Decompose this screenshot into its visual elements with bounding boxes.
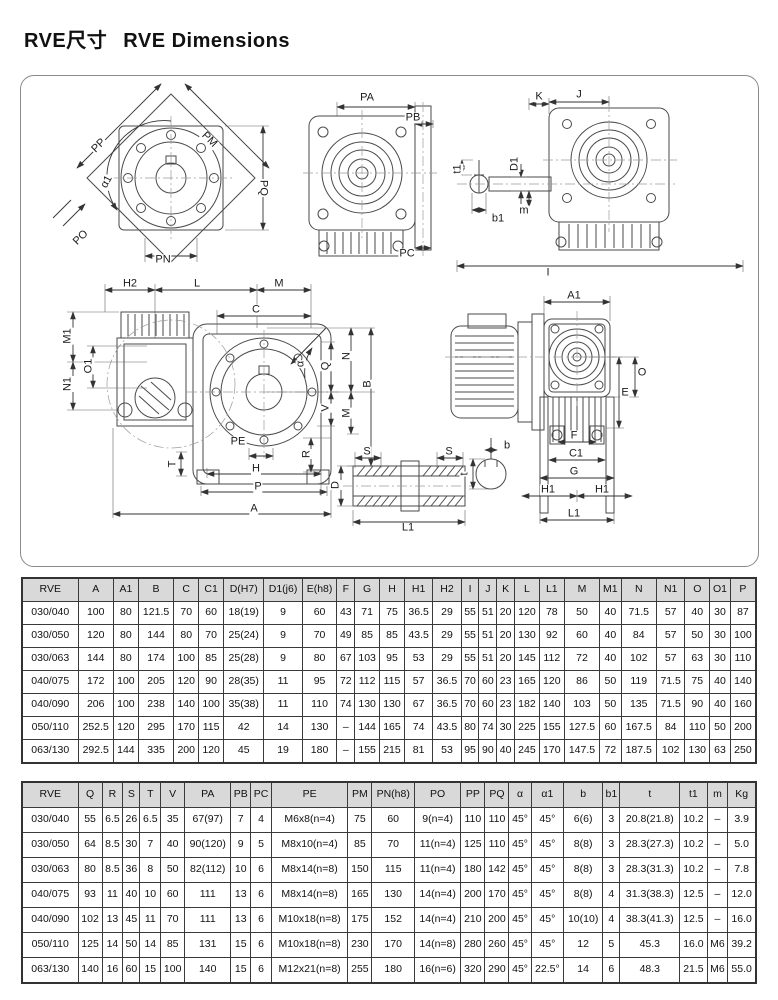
- table-cell: 115: [372, 858, 415, 883]
- table-cell: 8.5: [102, 833, 123, 858]
- column-header: PM: [348, 782, 372, 808]
- table-cell: 165: [515, 671, 540, 694]
- table-cell: 80: [461, 717, 479, 740]
- table-cell: –: [337, 740, 355, 764]
- table-cell: 205: [138, 671, 173, 694]
- table-cell: 200: [730, 717, 756, 740]
- table-cell: 51: [479, 625, 497, 648]
- table-row: 030/063144801741008525(28)98067103955329…: [22, 648, 756, 671]
- table-cell: 255: [348, 958, 372, 984]
- table-cell: 30: [123, 833, 140, 858]
- table-cell: 14(n=4): [414, 908, 460, 933]
- table-cell: 160: [730, 694, 756, 717]
- table-cell: 75: [380, 602, 405, 625]
- dim-label-l: L: [193, 279, 201, 290]
- table-cell: 45: [224, 740, 264, 764]
- table-cell: –: [707, 908, 728, 933]
- header-row: RVEQRSTVPAPBPCPEPMPN(h8)POPPPQαα1bb1tt1m…: [22, 782, 756, 808]
- table-cell: 45°: [509, 808, 531, 833]
- table-cell: 206: [78, 694, 113, 717]
- table-cell: 45°: [509, 908, 531, 933]
- table-cell: 5.0: [728, 833, 756, 858]
- table-cell: 64: [78, 833, 102, 858]
- dim-label-k: K: [534, 92, 543, 103]
- table-cell: 60: [600, 717, 621, 740]
- table-cell: 4: [251, 808, 272, 833]
- dim-label-t1: t1: [453, 163, 464, 174]
- table-cell: 9: [264, 648, 302, 671]
- table-cell: 6: [251, 933, 272, 958]
- dim-label-l1: L1: [567, 509, 581, 520]
- table-cell: –: [707, 833, 728, 858]
- table-cell: 14: [264, 717, 302, 740]
- table-cell: 180: [372, 958, 415, 984]
- dim-label-b1: b1: [491, 214, 505, 225]
- table-cell: 180: [461, 858, 485, 883]
- table-cell: 57: [656, 602, 684, 625]
- table-cell: 60: [123, 958, 140, 984]
- table-cell: 10: [140, 883, 161, 908]
- table-cell: 130: [355, 694, 380, 717]
- table-cell: 100: [113, 694, 138, 717]
- table-cell: 121.5: [138, 602, 173, 625]
- table-cell: 60: [479, 671, 497, 694]
- row-label: 030/063: [22, 858, 78, 883]
- table-cell: 10: [231, 858, 251, 883]
- table-cell: 75: [685, 671, 710, 694]
- table-cell: 142: [485, 858, 509, 883]
- table-cell: 174: [138, 648, 173, 671]
- table-cell: 28(35): [224, 671, 264, 694]
- table-cell: 15: [140, 958, 161, 984]
- table-cell: 85: [355, 625, 380, 648]
- dim-label-v: V: [321, 403, 332, 412]
- table-cell: 130: [685, 740, 710, 764]
- table-cell: M12x21(n=8): [271, 958, 347, 984]
- table-cell: 215: [380, 740, 405, 764]
- table-cell: 42: [224, 717, 264, 740]
- table-cell: 30: [497, 717, 515, 740]
- table-cell: 260: [485, 933, 509, 958]
- table-cell: 57: [656, 625, 684, 648]
- table-cell: 55: [461, 625, 479, 648]
- table-cell: M6: [707, 958, 728, 984]
- table-cell: 155: [539, 717, 564, 740]
- table-cell: 80: [113, 625, 138, 648]
- table-cell: 210: [461, 908, 485, 933]
- table-cell: 112: [355, 671, 380, 694]
- table-cell: 57: [404, 671, 432, 694]
- table-row: 040/09020610023814010035(38)111107413013…: [22, 694, 756, 717]
- column-header: D(H7): [224, 578, 264, 602]
- table-cell: 5: [603, 933, 620, 958]
- table-cell: 6.5: [102, 808, 123, 833]
- table-cell: 110: [485, 808, 509, 833]
- table-row: 030/063808.53685082(112)106M8x14(n=8)150…: [22, 858, 756, 883]
- table-cell: 85: [199, 648, 224, 671]
- column-header: PA: [185, 782, 231, 808]
- table-cell: 155: [355, 740, 380, 764]
- table-cell: 100: [113, 671, 138, 694]
- dim-label-g: G: [569, 467, 580, 478]
- page-title-en: RVE Dimensions: [123, 30, 290, 52]
- table-cell: 50: [161, 858, 185, 883]
- dim-label-o1: O1: [84, 358, 95, 375]
- table-cell: 20: [497, 625, 515, 648]
- table-cell: 90: [479, 740, 497, 764]
- table-cell: 15: [231, 958, 251, 984]
- table-cell: 16(n=6): [414, 958, 460, 984]
- table-cell: 26: [123, 808, 140, 833]
- table-cell: 120: [515, 602, 540, 625]
- table-cell: 120: [199, 740, 224, 764]
- table-cell: 71: [355, 602, 380, 625]
- table-cell: 102: [656, 740, 684, 764]
- column-header: RVE: [22, 578, 78, 602]
- table-cell: 60: [199, 602, 224, 625]
- table-cell: 140: [730, 671, 756, 694]
- table-cell: 40: [600, 625, 621, 648]
- table-cell: 30: [710, 625, 731, 648]
- column-header: PP: [461, 782, 485, 808]
- table-cell: 70: [174, 602, 199, 625]
- table-cell: 75: [348, 808, 372, 833]
- table-cell: 50: [600, 671, 621, 694]
- table-cell: 72: [337, 671, 355, 694]
- table-cell: 3: [603, 833, 620, 858]
- column-header: O: [685, 578, 710, 602]
- table-cell: 80: [113, 602, 138, 625]
- dim-label-q: Q: [321, 361, 332, 372]
- table-cell: 18(19): [224, 602, 264, 625]
- table-cell: 30: [710, 648, 731, 671]
- row-label: 050/110: [22, 933, 78, 958]
- column-header: T: [140, 782, 161, 808]
- dim-label-d: D: [331, 480, 342, 490]
- table-cell: 9: [264, 625, 302, 648]
- column-header: M1: [600, 578, 621, 602]
- table-cell: –: [337, 717, 355, 740]
- table-cell: 84: [656, 717, 684, 740]
- table-cell: 5: [251, 833, 272, 858]
- table-cell: 152: [372, 908, 415, 933]
- table-cell: 19: [264, 740, 302, 764]
- table-cell: 50: [710, 717, 731, 740]
- table-cell: 9(n=4): [414, 808, 460, 833]
- dim-label-m: M: [342, 407, 353, 418]
- table-cell: 7.8: [728, 858, 756, 883]
- table-cell: 9: [264, 602, 302, 625]
- table-cell: 11: [264, 694, 302, 717]
- drawing-panel: PPPMα1PQPOPNPAPBPCKJt1D1mb1IH2LMCM1O1N1Q…: [20, 75, 759, 567]
- table-cell: 12.0: [728, 883, 756, 908]
- table-cell: M10x18(n=8): [271, 908, 347, 933]
- column-header: J: [479, 578, 497, 602]
- table-cell: 78: [539, 602, 564, 625]
- column-header: V: [161, 782, 185, 808]
- table-cell: 147.5: [564, 740, 599, 764]
- table-cell: 90: [199, 671, 224, 694]
- input-shaft-view: [470, 108, 669, 250]
- table-cell: 51: [479, 648, 497, 671]
- table-cell: 80: [78, 858, 102, 883]
- table-cell: 16: [102, 958, 123, 984]
- table-cell: 85: [348, 833, 372, 858]
- table-cell: 6: [251, 958, 272, 984]
- table-cell: 111: [185, 908, 231, 933]
- table-cell: 103: [355, 648, 380, 671]
- table-cell: 82(112): [185, 858, 231, 883]
- table-cell: 80: [302, 648, 337, 671]
- technical-drawing: [21, 76, 758, 566]
- table-cell: 38.3(41.3): [620, 908, 680, 933]
- column-header: C1: [199, 578, 224, 602]
- table-cell: 40: [600, 602, 621, 625]
- table-cell: 25(24): [224, 625, 264, 648]
- table-cell: 100: [730, 625, 756, 648]
- table-cell: 144: [78, 648, 113, 671]
- dim-label-b: B: [363, 379, 374, 388]
- column-header: PB: [231, 782, 251, 808]
- dimensions-table-1: RVEAA1BCC1D(H7)D1(j6)E(h8)FGHH1H2IJKLL1M…: [21, 577, 757, 764]
- table-cell: 140: [78, 958, 102, 984]
- dim-label-i: I: [545, 268, 550, 279]
- table-cell: 55.0: [728, 958, 756, 984]
- table-cell: 11: [140, 908, 161, 933]
- table-row: 030/05012080144807025(24)97049858543.529…: [22, 625, 756, 648]
- table-cell: 90: [685, 694, 710, 717]
- table-cell: 70: [461, 694, 479, 717]
- column-header: b1: [603, 782, 620, 808]
- dim-label-pn: PN: [154, 255, 171, 266]
- table-cell: 92: [539, 625, 564, 648]
- table-cell: 45°: [531, 908, 563, 933]
- row-label: 040/090: [22, 694, 78, 717]
- table-cell: 45.3: [620, 933, 680, 958]
- table-cell: M10x18(n=8): [271, 933, 347, 958]
- table-cell: 70: [461, 671, 479, 694]
- dim-label-m: m: [518, 206, 529, 217]
- column-header: PE: [271, 782, 347, 808]
- column-header: L1: [539, 578, 564, 602]
- table-cell: 6: [603, 958, 620, 984]
- table-cell: 67: [404, 694, 432, 717]
- table-cell: 31.3(38.3): [620, 883, 680, 908]
- column-header: E(h8): [302, 578, 337, 602]
- table-cell: 50: [685, 625, 710, 648]
- table-cell: 167.5: [621, 717, 656, 740]
- table-cell: 182: [515, 694, 540, 717]
- table-cell: 130: [515, 625, 540, 648]
- column-header: PC: [251, 782, 272, 808]
- table-cell: 40: [710, 671, 731, 694]
- table-cell: 10(10): [564, 908, 603, 933]
- table-cell: 245: [515, 740, 540, 764]
- table-cell: 45°: [531, 808, 563, 833]
- table-cell: 12: [564, 933, 603, 958]
- table-cell: 43.5: [404, 625, 432, 648]
- table-cell: 112: [539, 648, 564, 671]
- row-label: 040/075: [22, 671, 78, 694]
- table-cell: 45°: [509, 958, 531, 984]
- table-cell: 43: [337, 602, 355, 625]
- table-cell: 40: [497, 740, 515, 764]
- table-cell: 140: [174, 694, 199, 717]
- table-cell: –: [707, 808, 728, 833]
- gearmotor-view: [451, 314, 614, 513]
- table-cell: 335: [138, 740, 173, 764]
- dim-label-s: S: [362, 447, 371, 458]
- row-label: 040/090: [22, 908, 78, 933]
- dim-label-e: E: [620, 388, 629, 399]
- table-cell: 11(n=4): [414, 858, 460, 883]
- table-cell: 14(n=8): [414, 933, 460, 958]
- table-cell: 115: [199, 717, 224, 740]
- table-cell: 45°: [509, 883, 531, 908]
- table-cell: 110: [485, 833, 509, 858]
- column-header: F: [337, 578, 355, 602]
- dim-label-s: S: [444, 447, 453, 458]
- table-cell: 23: [497, 671, 515, 694]
- table-cell: 7: [140, 833, 161, 858]
- table-cell: 110: [685, 717, 710, 740]
- table-cell: 60: [302, 602, 337, 625]
- dim-label-pq: PQ: [258, 179, 269, 197]
- column-header: α1: [531, 782, 563, 808]
- table-cell: 292.5: [78, 740, 113, 764]
- column-header: Q: [78, 782, 102, 808]
- table-cell: 15: [231, 933, 251, 958]
- dim-label-pa: PA: [359, 93, 375, 104]
- column-header: L: [515, 578, 540, 602]
- table-cell: 165: [348, 883, 372, 908]
- column-header: m: [707, 782, 728, 808]
- column-header: O1: [710, 578, 731, 602]
- table-cell: 125: [461, 833, 485, 858]
- table-row: 063/130140166015100140156M12x21(n=8)2551…: [22, 958, 756, 984]
- dim-label-t: T: [168, 460, 179, 469]
- column-header: H: [380, 578, 405, 602]
- column-header: H1: [404, 578, 432, 602]
- table-cell: 67(97): [185, 808, 231, 833]
- table-cell: 93: [78, 883, 102, 908]
- table-cell: 71.5: [656, 671, 684, 694]
- table-cell: 252.5: [78, 717, 113, 740]
- table-cell: 13: [231, 908, 251, 933]
- table-cell: 35(38): [224, 694, 264, 717]
- table-cell: 103: [564, 694, 599, 717]
- table-cell: 55: [461, 648, 479, 671]
- table-cell: 70: [372, 833, 415, 858]
- table-cell: 60: [564, 625, 599, 648]
- table-cell: 16.0: [728, 908, 756, 933]
- table-cell: 45°: [509, 858, 531, 883]
- row-label: 030/050: [22, 625, 78, 648]
- dim-label-f: F: [570, 431, 579, 442]
- column-header: A: [78, 578, 113, 602]
- table-cell: 45: [123, 908, 140, 933]
- table-cell: 280: [461, 933, 485, 958]
- table-cell: 74: [404, 717, 432, 740]
- table-cell: 45°: [531, 933, 563, 958]
- table-cell: 180: [302, 740, 337, 764]
- table-cell: 140: [185, 958, 231, 984]
- column-header: N1: [656, 578, 684, 602]
- table-cell: 71.5: [621, 602, 656, 625]
- gearbox-side-view: [117, 312, 331, 484]
- table-cell: 170: [485, 883, 509, 908]
- table-cell: 200: [174, 740, 199, 764]
- table-cell: 50: [600, 694, 621, 717]
- table-cell: 144: [138, 625, 173, 648]
- dim-label-n: N: [342, 351, 353, 361]
- table-cell: 63: [710, 740, 731, 764]
- column-header: A1: [113, 578, 138, 602]
- table-row: 063/130292.51443352001204519180–15521581…: [22, 740, 756, 764]
- table-cell: 10.2: [680, 833, 708, 858]
- column-header: t1: [680, 782, 708, 808]
- table-cell: 95: [302, 671, 337, 694]
- table-cell: 74: [479, 717, 497, 740]
- dim-label-h1: H1: [594, 485, 610, 496]
- table-cell: 72: [564, 648, 599, 671]
- table-cell: 250: [730, 740, 756, 764]
- table-cell: 125: [78, 933, 102, 958]
- dim-label-h: H: [251, 464, 261, 475]
- table-cell: 57: [656, 648, 684, 671]
- table-cell: 13: [231, 883, 251, 908]
- row-label: 030/040: [22, 602, 78, 625]
- table-cell: 80: [113, 648, 138, 671]
- column-header: P: [730, 578, 756, 602]
- table-cell: 120: [78, 625, 113, 648]
- table-cell: 102: [78, 908, 102, 933]
- table-cell: 172: [78, 671, 113, 694]
- table-cell: 238: [138, 694, 173, 717]
- table-cell: –: [707, 858, 728, 883]
- column-header: S: [123, 782, 140, 808]
- table-cell: 225: [515, 717, 540, 740]
- dim-label-p: P: [253, 482, 262, 493]
- table-cell: 14(n=4): [414, 883, 460, 908]
- table-cell: 70: [302, 625, 337, 648]
- table-cell: 4: [603, 883, 620, 908]
- dim-label-o: O: [637, 368, 648, 379]
- table-cell: 14: [140, 933, 161, 958]
- table-cell: 6: [251, 858, 272, 883]
- dim-label-: α: [296, 360, 307, 368]
- table-cell: 14: [102, 933, 123, 958]
- table-cell: –: [707, 883, 728, 908]
- row-label: 040/075: [22, 883, 78, 908]
- table-cell: 85: [380, 625, 405, 648]
- column-header: α: [509, 782, 531, 808]
- table-cell: 290: [485, 958, 509, 984]
- table-cell: 23: [497, 694, 515, 717]
- table-cell: 130: [302, 717, 337, 740]
- table-cell: 53: [433, 740, 461, 764]
- table-row: 040/0759311401060111136M8x14(n=8)1651301…: [22, 883, 756, 908]
- table-cell: 144: [113, 740, 138, 764]
- table-cell: 40: [685, 602, 710, 625]
- table-cell: 14: [564, 958, 603, 984]
- table-row: 050/110252.51202951701154214130–14416574…: [22, 717, 756, 740]
- table-cell: 95: [461, 740, 479, 764]
- table-cell: 8(8): [564, 883, 603, 908]
- column-header: H2: [433, 578, 461, 602]
- table-cell: 36.5: [433, 694, 461, 717]
- row-label: 050/110: [22, 717, 78, 740]
